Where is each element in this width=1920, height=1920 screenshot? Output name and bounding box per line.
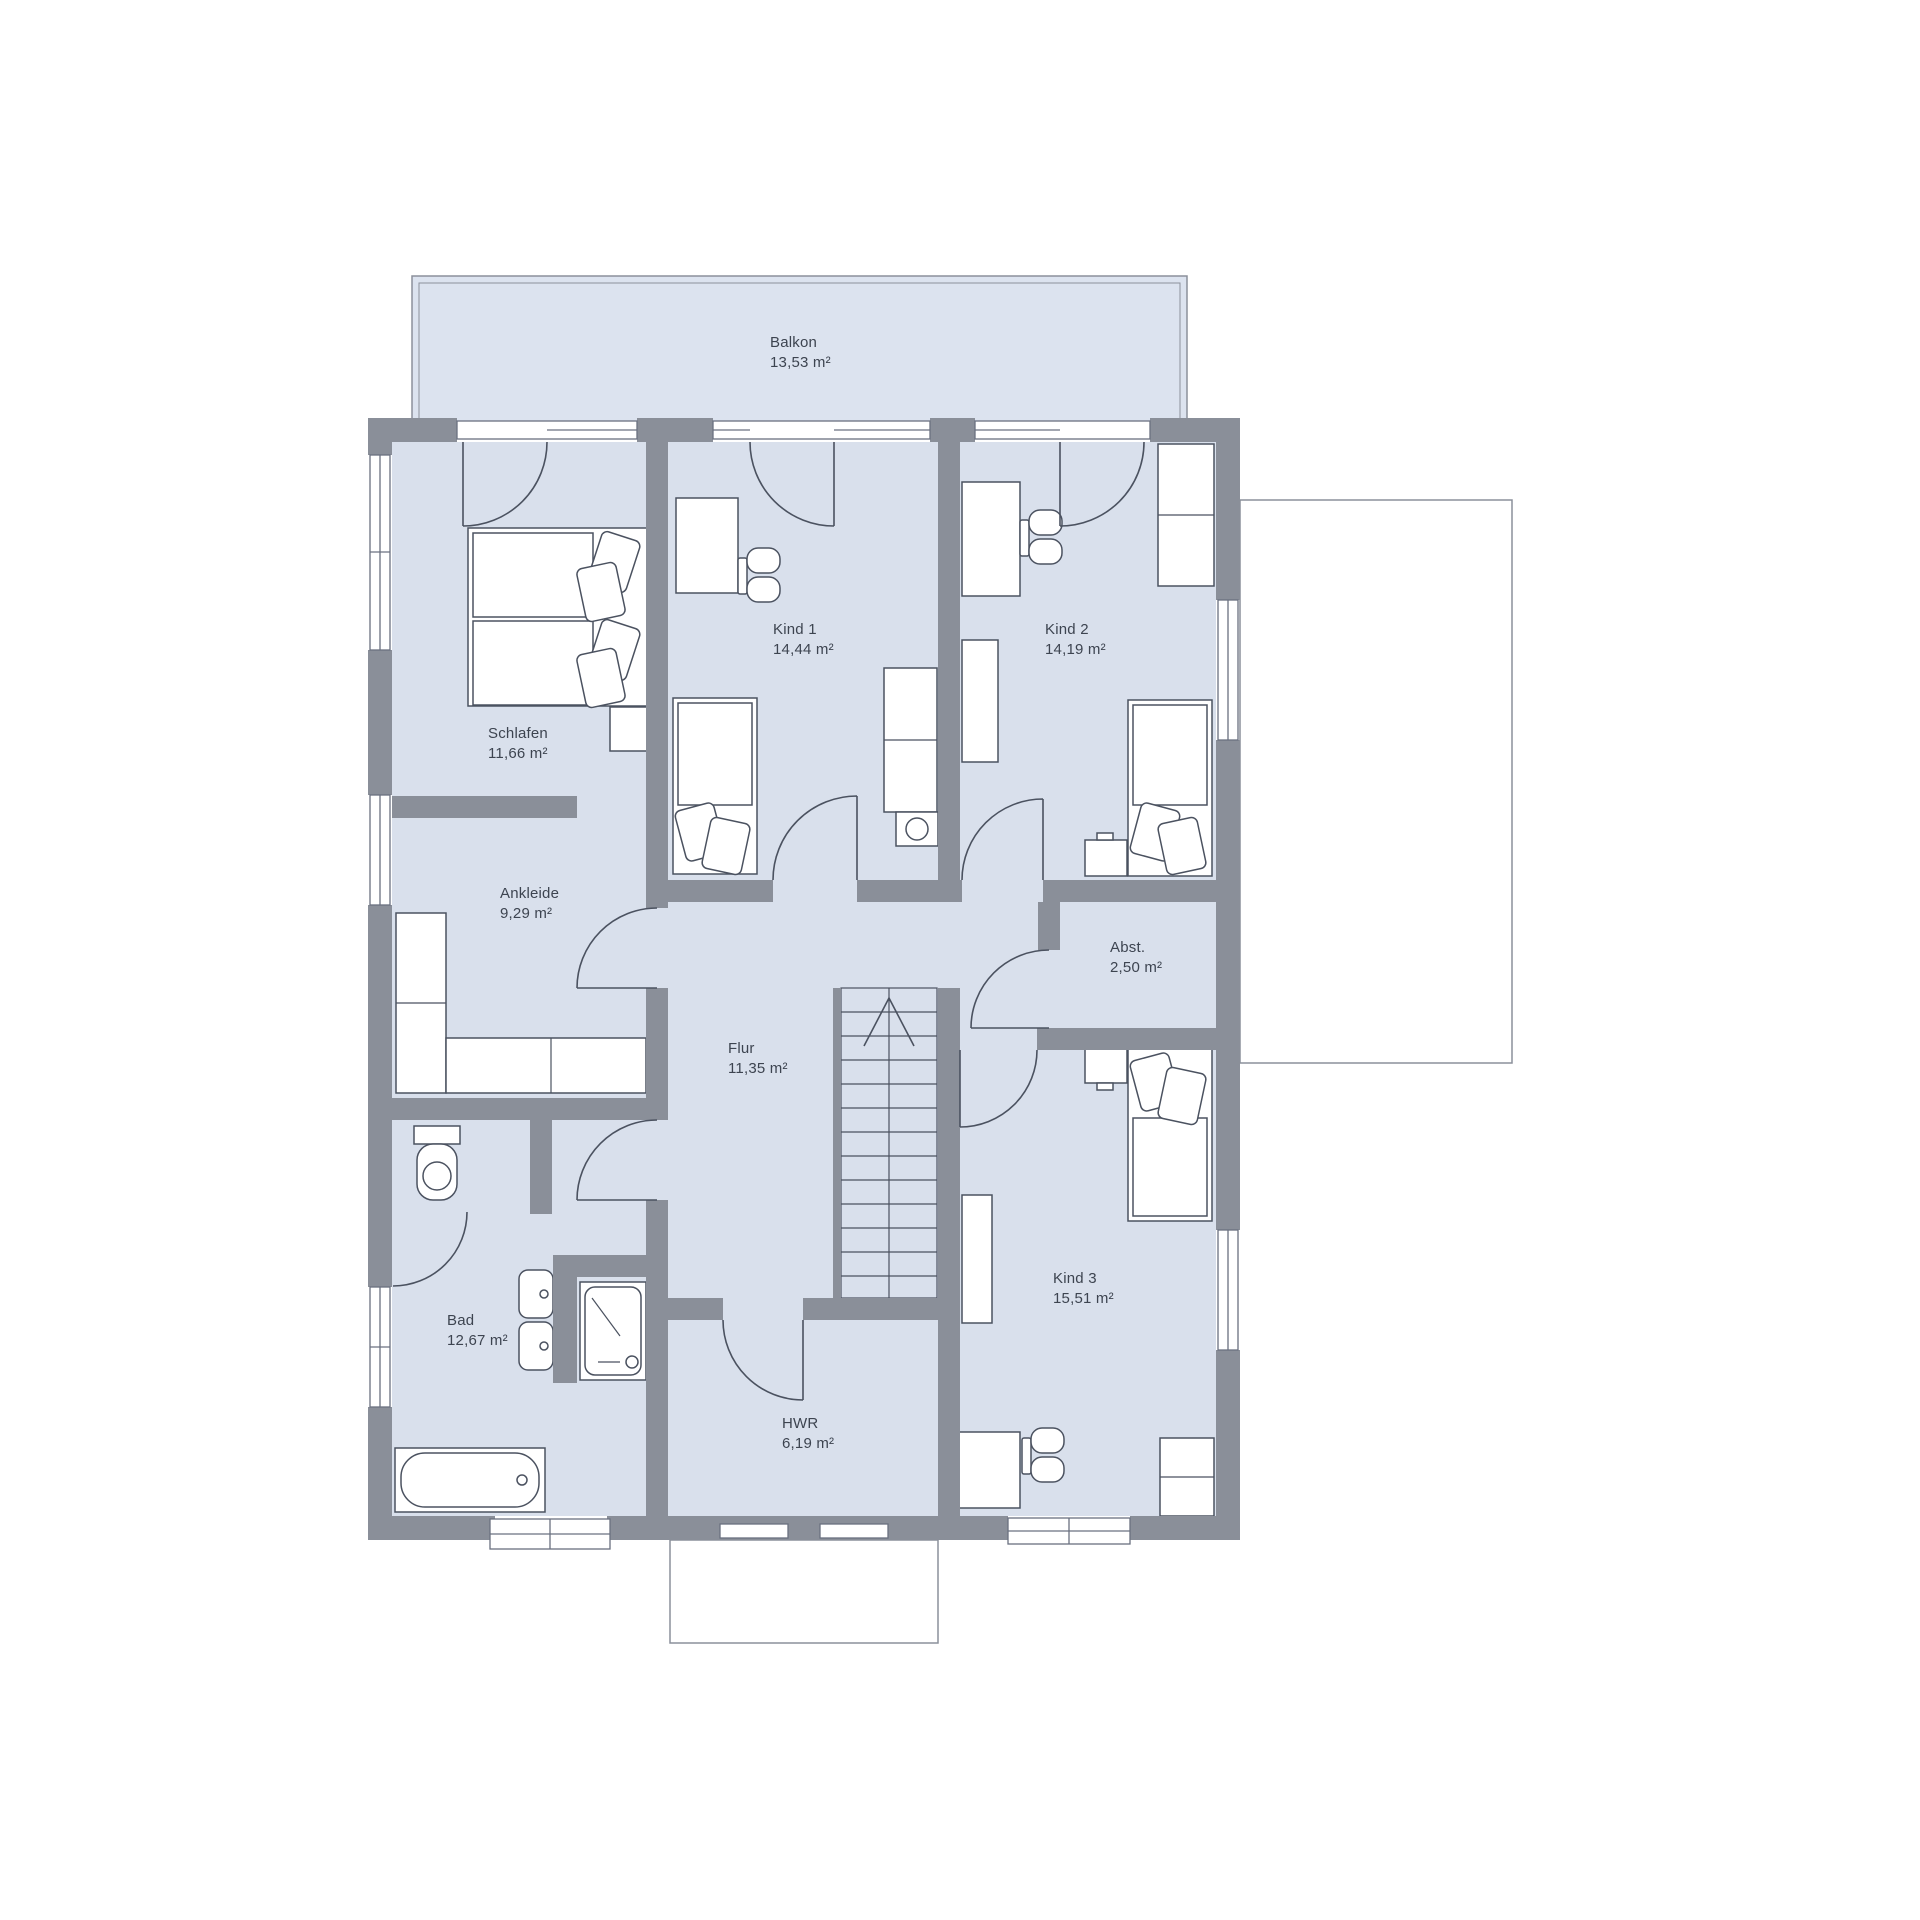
room-label-kind2: Kind 2 [1045,621,1089,638]
washbasin-drain [540,1290,548,1298]
room-label-abst: Abst. [1110,939,1145,956]
room-label-schlafen: Schlafen [488,725,548,742]
interior-wall [646,442,668,908]
room-label-kind1: Kind 1 [773,621,817,638]
nightstand [1085,1047,1127,1083]
interior-wall [530,1120,552,1214]
lamp [906,818,928,840]
nightstand [1085,840,1127,876]
interior-wall [938,442,960,880]
room-label-flur: Flur [728,1040,755,1057]
interior-wall [857,880,938,902]
interior-wall [668,880,773,902]
room-area-ankleide: 9,29 m² [500,905,552,922]
room-area-kind3: 15,51 m² [1053,1290,1114,1307]
interior-wall [392,1098,668,1120]
mattress [473,621,593,705]
shower-drain [626,1356,638,1368]
wardrobe [962,1195,992,1323]
interior-wall [938,988,960,1516]
interior-wall [1043,880,1216,902]
room-label-kind3: Kind 3 [1053,1270,1097,1287]
nightstand-knob [1097,1083,1113,1090]
room-area-kind1: 14,44 m² [773,641,834,658]
stair-rail-wall [833,988,841,1298]
room-area-flur: 11,35 m² [728,1060,788,1077]
interior-wall [553,1255,646,1277]
desk [676,498,738,593]
interior-wall [1037,1028,1216,1050]
room-area-balkon: 13,53 m² [770,354,831,371]
vent-window [720,1524,788,1538]
mattress [678,703,752,805]
floor-plan-page: Balkon 13,53 m² Schlafen 11,66 m² Kind 1… [0,0,1920,1920]
interior-wall [646,1200,668,1516]
washbasin-drain [540,1342,548,1350]
interior-wall [938,880,962,902]
room-area-kind2: 14,19 m² [1045,641,1106,658]
interior-wall [1038,902,1060,950]
desk [957,1432,1020,1508]
wardrobe [962,640,998,762]
room-area-hwr: 6,19 m² [782,1435,834,1452]
toilet-tank [414,1126,460,1144]
porch-roof-outline [670,1540,938,1643]
interior-wall [803,1298,938,1320]
interior-wall [668,1298,723,1320]
vent-window [820,1524,888,1538]
room-label-hwr: HWR [782,1415,818,1432]
mattress [1133,1118,1207,1216]
desk [962,482,1020,596]
nightstand-knob [1097,833,1113,840]
interior-wall [392,796,577,818]
room-area-schlafen: 11,66 m² [488,745,548,762]
room-label-bad: Bad [447,1312,474,1329]
nightstand [610,707,650,751]
mattress [473,533,593,617]
room-label-ankleide: Ankleide [500,885,559,902]
staircase [833,988,937,1298]
interior-wall [553,1277,577,1383]
wardrobe [446,1038,646,1093]
floor-plan-canvas: Balkon 13,53 m² Schlafen 11,66 m² Kind 1… [0,0,1920,1920]
room-label-balkon: Balkon [770,334,817,351]
toilet-drain [423,1162,451,1190]
mattress [1133,705,1207,805]
room-area-abst: 2,50 m² [1110,959,1162,976]
room-area-bad: 12,67 m² [447,1332,508,1349]
lower-roof-outline [1240,500,1512,1063]
bathtub-drain [517,1475,527,1485]
